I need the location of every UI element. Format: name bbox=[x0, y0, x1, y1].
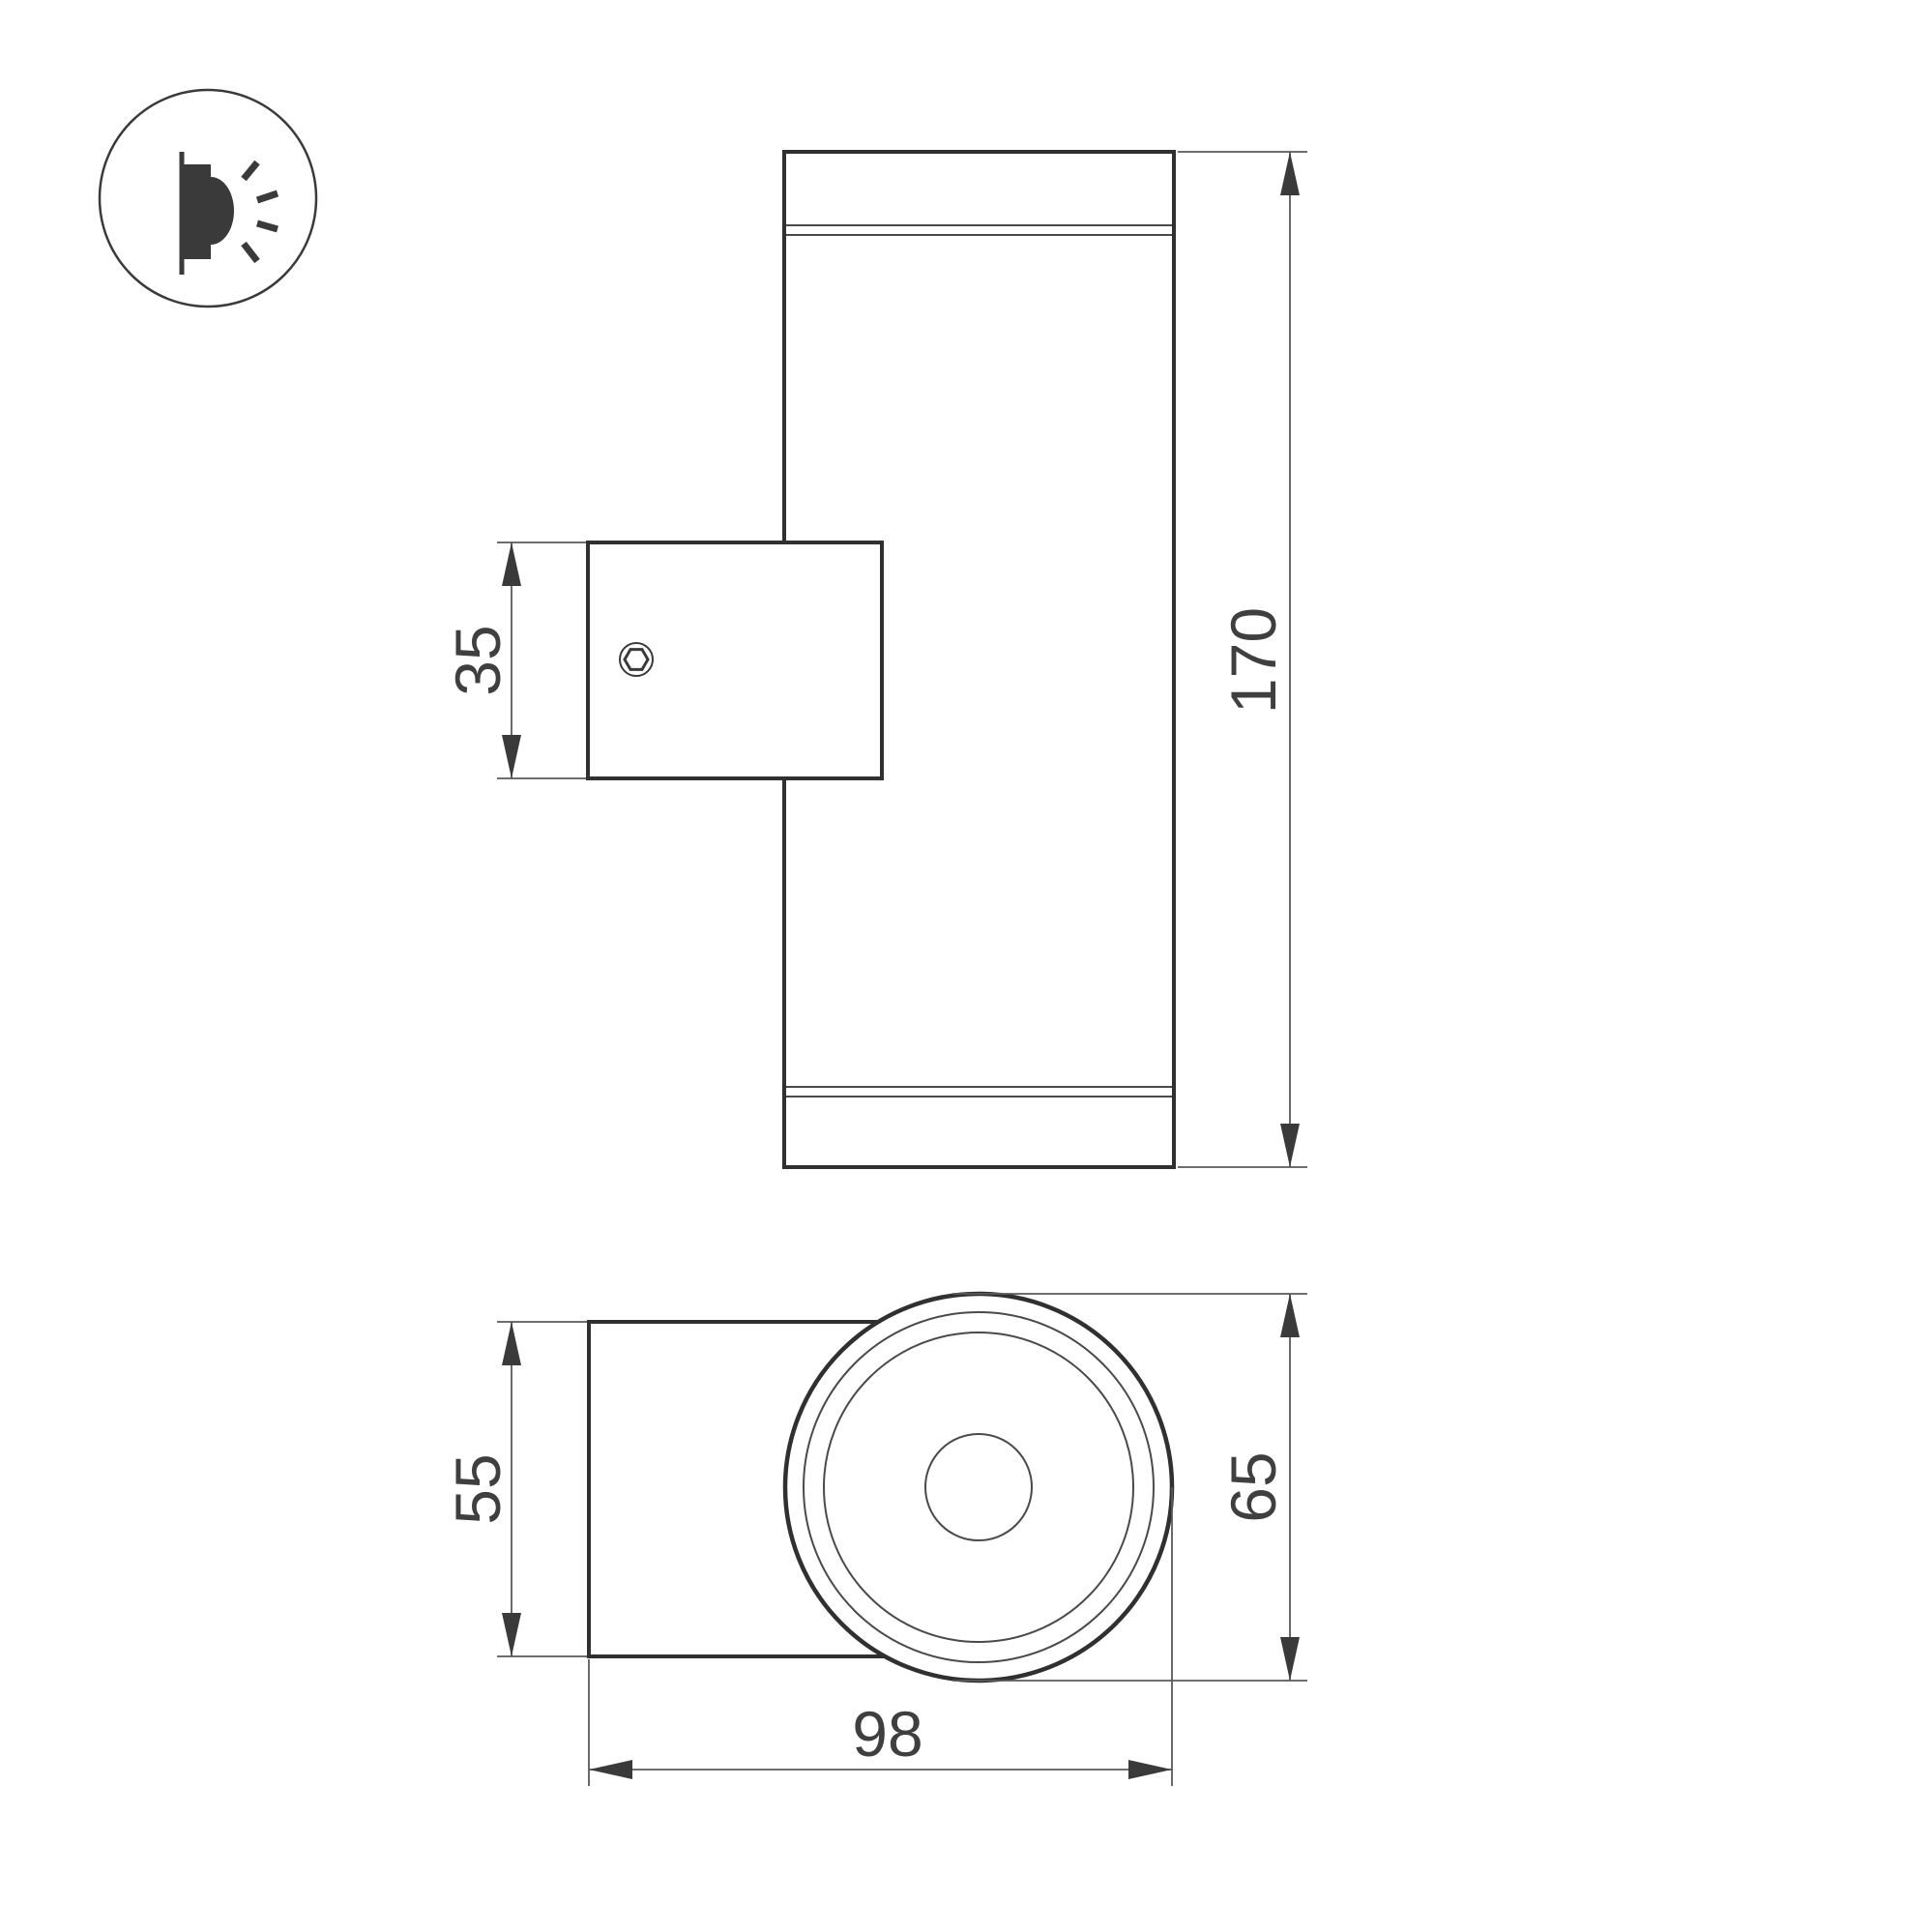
icon-light-ray-2 bbox=[257, 193, 278, 200]
arrowhead-up bbox=[1280, 152, 1300, 195]
bottom-view bbox=[589, 1294, 1172, 1681]
icon-lamp-body bbox=[184, 164, 211, 259]
wall-bracket-outline bbox=[588, 542, 882, 778]
icon-light-ray-4 bbox=[244, 244, 257, 261]
icon-lens-semicircle bbox=[211, 177, 234, 245]
arrowhead-down bbox=[502, 735, 521, 778]
dimension-bracket-width: 55 bbox=[442, 1322, 587, 1656]
wall-light-type-icon bbox=[100, 90, 316, 307]
arrowhead-down bbox=[502, 1613, 521, 1656]
dimension-value: 170 bbox=[1217, 607, 1289, 714]
arrowhead-up bbox=[502, 542, 521, 586]
dimension-value: 65 bbox=[1217, 1451, 1289, 1522]
technical-drawing-page: 35 170 bbox=[0, 0, 1932, 1932]
arrowhead-down bbox=[1280, 1124, 1300, 1167]
arrowhead-up bbox=[1280, 1294, 1300, 1337]
luminaire-dimension-drawing: 35 170 bbox=[0, 0, 1932, 1932]
front-view bbox=[588, 152, 1174, 1167]
arrowhead-right bbox=[1128, 1760, 1172, 1779]
arrowhead-up bbox=[502, 1322, 521, 1365]
dimension-value: 98 bbox=[852, 1698, 922, 1770]
dimension-value: 35 bbox=[442, 625, 513, 695]
dimension-overall-height: 170 bbox=[1178, 152, 1307, 1167]
arrowhead-left bbox=[589, 1760, 632, 1779]
dimension-value: 55 bbox=[442, 1453, 513, 1524]
dimension-bracket-height: 35 bbox=[442, 542, 586, 778]
icon-light-ray-1 bbox=[244, 162, 257, 179]
icon-light-ray-3 bbox=[257, 223, 278, 229]
arrowhead-down bbox=[1280, 1637, 1300, 1681]
lamp-face-outer-circle bbox=[785, 1294, 1172, 1681]
